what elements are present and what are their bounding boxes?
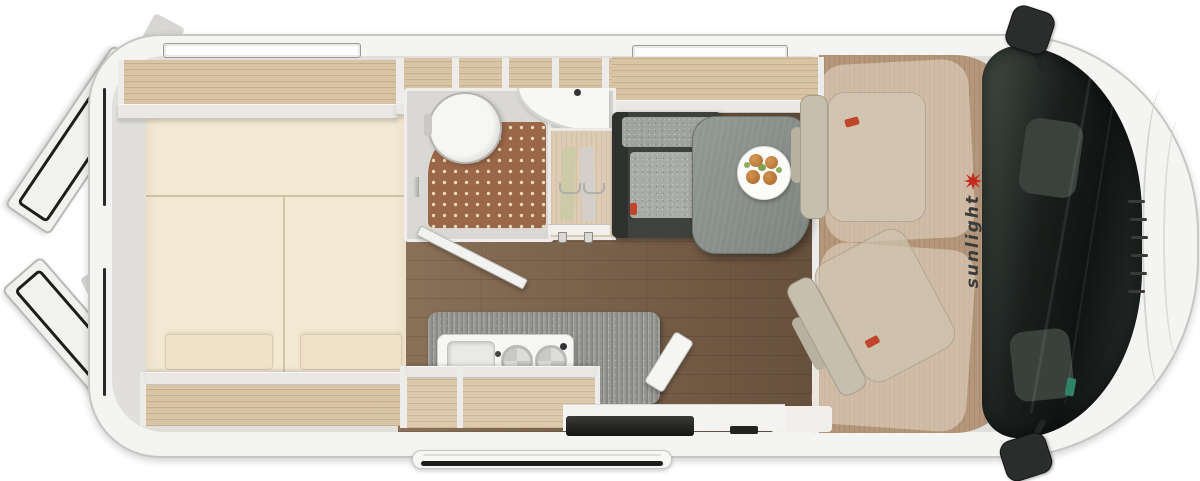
food-item bbox=[746, 170, 760, 184]
hood-seam bbox=[1163, 120, 1195, 360]
entry-step bbox=[566, 416, 694, 436]
grille-slat bbox=[1128, 200, 1145, 203]
sunlight-wordmark: sunlight bbox=[963, 194, 983, 288]
mirror-head bbox=[1002, 2, 1057, 57]
overhead-cabinet-rear bbox=[118, 60, 398, 106]
mattress-seam-vertical bbox=[283, 197, 285, 379]
roof-window-rear bbox=[163, 43, 361, 58]
cabinet-divider bbox=[457, 366, 463, 428]
grille-slat bbox=[1128, 290, 1145, 293]
food-item bbox=[763, 171, 777, 185]
bed-pillow-left bbox=[165, 334, 273, 370]
wardrobe-hook bbox=[584, 232, 593, 243]
toilet-hinge bbox=[424, 114, 432, 136]
seatbelt-buckle bbox=[630, 203, 637, 215]
side-mirror-bottom bbox=[1000, 418, 1066, 480]
mattress-seam-horizontal bbox=[146, 195, 406, 197]
seat-cushion bbox=[828, 92, 926, 222]
bottom-cabinet-kitchen-lip bbox=[407, 366, 595, 378]
brand-block: sunlight bbox=[958, 172, 988, 342]
sink-faucet bbox=[495, 351, 501, 357]
wardrobe-hook bbox=[558, 232, 567, 243]
mirror-head bbox=[997, 430, 1056, 481]
food-plate bbox=[737, 146, 791, 200]
sliding-door-seal bbox=[421, 461, 663, 466]
bathroom-door-handle bbox=[413, 177, 419, 197]
grille-slat bbox=[1131, 236, 1148, 239]
rearview-mirror bbox=[1065, 377, 1077, 396]
food-garnish bbox=[776, 167, 782, 173]
door-seal-bottom bbox=[103, 268, 106, 396]
sink-faucet bbox=[574, 89, 581, 96]
sunlight-logo-icon bbox=[964, 172, 982, 190]
toilet bbox=[428, 92, 502, 164]
sliding-door bbox=[412, 450, 672, 469]
sliding-door-line bbox=[423, 454, 661, 456]
stove-knob bbox=[560, 343, 567, 350]
wardrobe-glass bbox=[551, 131, 613, 237]
door-rail-end bbox=[730, 426, 758, 434]
grille-slat bbox=[1131, 254, 1148, 257]
food-garnish bbox=[744, 162, 750, 168]
grille-slat bbox=[1130, 218, 1147, 221]
grille-slat bbox=[1130, 272, 1147, 275]
camper-floorplan: sunlight bbox=[0, 0, 1200, 481]
seat-backrest bbox=[800, 95, 828, 219]
food-garnish bbox=[758, 164, 766, 171]
bed-pillow-right bbox=[300, 334, 402, 370]
side-mirror-top bbox=[1004, 6, 1064, 76]
door-seal-top bbox=[103, 88, 106, 206]
overhead-cabinet-rear-lip bbox=[118, 104, 398, 119]
